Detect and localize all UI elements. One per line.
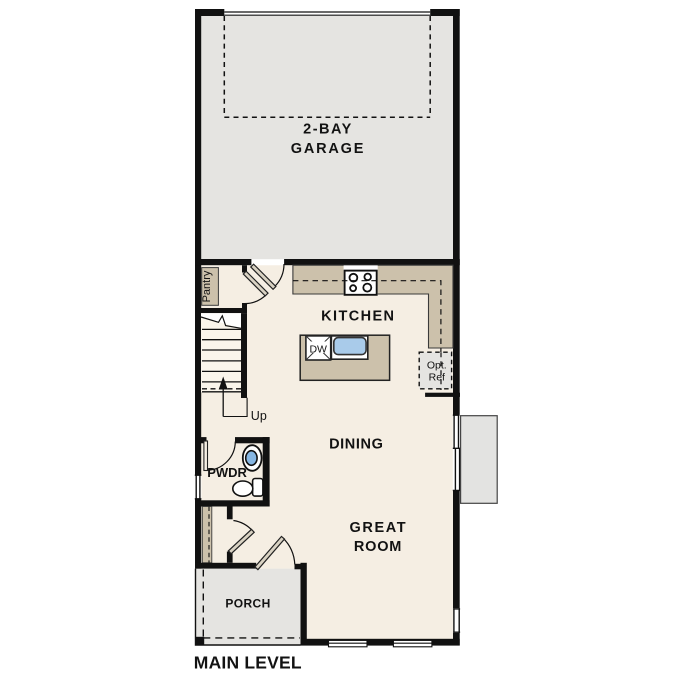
svg-text:DINING: DINING (329, 437, 383, 453)
svg-text:Opt.: Opt. (427, 359, 447, 371)
svg-text:2-BAY: 2-BAY (303, 122, 353, 138)
svg-text:PORCH: PORCH (225, 596, 270, 610)
svg-text:KITCHEN: KITCHEN (321, 309, 395, 325)
svg-text:PWDR: PWDR (207, 465, 247, 480)
svg-text:ROOM: ROOM (354, 539, 402, 555)
svg-text:DW: DW (309, 343, 327, 355)
svg-text:Ref: Ref (429, 372, 445, 384)
svg-text:GARAGE: GARAGE (291, 141, 365, 157)
svg-text:Pantry: Pantry (201, 270, 213, 302)
svg-text:Up: Up (251, 409, 267, 423)
svg-text:GREAT: GREAT (350, 520, 408, 536)
svg-text:MAIN LEVEL: MAIN LEVEL (194, 652, 302, 672)
